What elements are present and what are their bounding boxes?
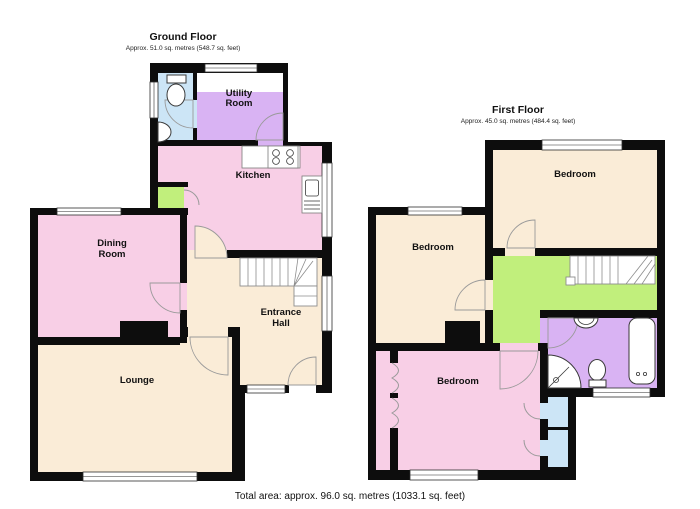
first-floor-title: First Floor (492, 104, 544, 116)
first-floor-area: Approx. 45.0 sq. metres (484.4 sq. feet) (461, 118, 576, 125)
cupboard-top (548, 397, 568, 427)
label-bedroom-left: Bedroom (412, 242, 454, 253)
label-lounge: Lounge (120, 375, 154, 386)
wall-segment (156, 182, 188, 187)
wall-segment (540, 397, 548, 403)
wall-segment (193, 73, 197, 100)
bedroom-front-door-opening (500, 343, 538, 351)
floorplan-image: Utility Room Kitchen Dining Room Entranc… (0, 0, 700, 509)
wall-segment (540, 310, 657, 318)
chimney-breast (445, 321, 480, 343)
cupboard-door-opening (540, 440, 548, 456)
label-dining: Room (99, 249, 126, 260)
label-entrance-hall: Entrance (261, 307, 302, 318)
label-utility: Room (226, 98, 253, 109)
sink-unit (302, 176, 322, 213)
hob-icon (268, 146, 298, 168)
wall-segment (568, 397, 576, 470)
wall-segment (368, 343, 500, 351)
label-bedroom-right: Bedroom (554, 169, 596, 180)
wall-segment (540, 456, 548, 470)
wall-segment (485, 310, 493, 345)
understairs-cupboard (158, 187, 184, 208)
wall-segment (150, 140, 258, 146)
cupboard-bottom (548, 430, 568, 467)
stair-newel (566, 277, 575, 285)
ground-floor-area: Approx. 51.0 sq. metres (548.7 sq. feet) (126, 45, 241, 52)
wall-segment (228, 327, 240, 337)
utility-door-opening (258, 140, 283, 146)
dining-door-opening (180, 283, 187, 310)
wall-segment (390, 351, 398, 363)
ground-floor-title: Ground Floor (149, 31, 216, 43)
toilet-cistern-icon (167, 75, 186, 83)
wall-segment (193, 128, 197, 140)
label-bedroom-front: Bedroom (437, 376, 479, 387)
bedroom-left-door-opening (485, 280, 493, 310)
total-area-text: Total area: approx. 96.0 sq. metres (103… (235, 491, 465, 502)
wall-segment (30, 337, 180, 345)
lounge-door-opening (188, 327, 228, 337)
front-door-opening (289, 385, 316, 393)
wall-segment (390, 393, 398, 398)
bathtub-icon (629, 318, 655, 384)
label-kitchen: Kitchen (236, 170, 271, 181)
bedroom-right-door-opening (505, 248, 535, 256)
bathroom-door-opening (540, 318, 548, 345)
toilet-cistern-icon (589, 380, 606, 387)
label-dining: Dining (97, 238, 127, 249)
floorplan-svg: Utility Room Kitchen Dining Room Entranc… (0, 0, 700, 509)
wall-segment (390, 428, 398, 470)
wall-segment (548, 427, 568, 430)
wall-segment (535, 248, 657, 256)
wall-segment (227, 250, 322, 258)
wall-segment (232, 337, 240, 472)
toilet-icon (167, 84, 185, 106)
stair-flight (570, 256, 655, 284)
wall-segment (485, 215, 493, 280)
wall-segment (180, 215, 187, 283)
first-floor-plan: Bedroom Bedroom Bedroom First Floor Appr… (368, 104, 665, 480)
wall-segment (540, 345, 548, 388)
wall-segment (180, 310, 187, 343)
stair-flight (240, 258, 317, 286)
wc-door-opening (193, 100, 197, 128)
chimney-breast (120, 321, 168, 337)
cupboard-door-opening (540, 403, 548, 419)
wall-segment (540, 419, 548, 440)
first-stairs (566, 256, 655, 285)
toilet-icon (589, 360, 606, 381)
wall-segment (180, 327, 188, 337)
label-entrance-hall: Hall (272, 318, 289, 329)
ground-floor-plan: Utility Room Kitchen Dining Room Entranc… (30, 31, 332, 481)
